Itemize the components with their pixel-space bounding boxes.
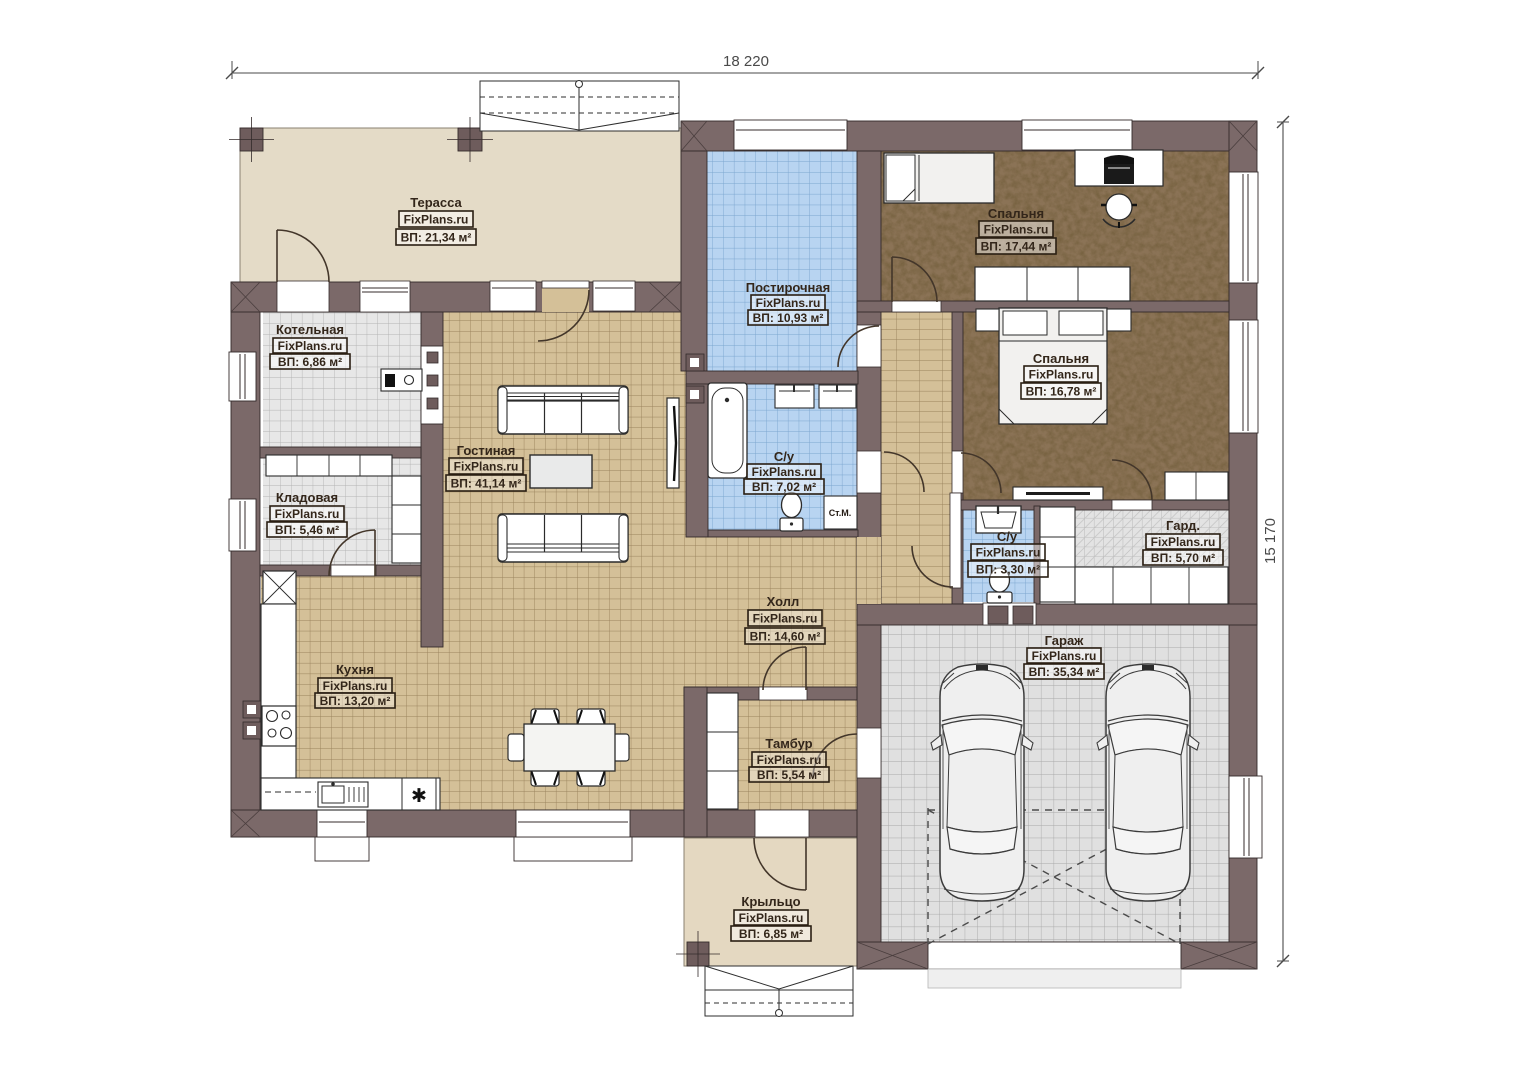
svg-text:Гард.: Гард.: [1166, 518, 1200, 533]
svg-text:ВП: 3,30 м²: ВП: 3,30 м²: [976, 563, 1040, 577]
svg-text:ВП: 10,93 м²: ВП: 10,93 м²: [753, 311, 824, 325]
svg-text:FixPlans.ru: FixPlans.ru: [1032, 649, 1097, 663]
svg-text:Крыльцо: Крыльцо: [741, 894, 800, 909]
svg-text:ВП: 14,60 м²: ВП: 14,60 м²: [750, 630, 821, 644]
svg-text:FixPlans.ru: FixPlans.ru: [757, 753, 822, 767]
svg-text:FixPlans.ru: FixPlans.ru: [752, 465, 817, 479]
svg-text:FixPlans.ru: FixPlans.ru: [278, 339, 343, 353]
svg-text:ВП: 5,70 м²: ВП: 5,70 м²: [1151, 551, 1215, 565]
svg-text:ВП: 6,85 м²: ВП: 6,85 м²: [739, 927, 803, 941]
svg-text:ВП: 5,54 м²: ВП: 5,54 м²: [757, 768, 821, 782]
svg-text:FixPlans.ru: FixPlans.ru: [756, 296, 821, 310]
svg-text:С/у: С/у: [774, 449, 795, 464]
svg-text:FixPlans.ru: FixPlans.ru: [976, 546, 1041, 560]
svg-text:ВП: 35,34 м²: ВП: 35,34 м²: [1029, 665, 1100, 679]
svg-text:ВП: 13,20 м²: ВП: 13,20 м²: [320, 694, 391, 708]
svg-text:ВП: 16,78 м²: ВП: 16,78 м²: [1026, 385, 1097, 399]
svg-text:Гараж: Гараж: [1045, 633, 1085, 648]
svg-text:FixPlans.ru: FixPlans.ru: [1029, 368, 1094, 382]
svg-text:ВП: 21,34 м²: ВП: 21,34 м²: [401, 231, 472, 245]
svg-text:Котельная: Котельная: [276, 322, 344, 337]
svg-text:Гостиная: Гостиная: [457, 443, 516, 458]
svg-text:FixPlans.ru: FixPlans.ru: [323, 679, 388, 693]
svg-text:ВП: 7,02 м²: ВП: 7,02 м²: [752, 480, 816, 494]
svg-text:FixPlans.ru: FixPlans.ru: [454, 460, 519, 474]
svg-text:Тамбур: Тамбур: [765, 736, 812, 751]
svg-text:Кухня: Кухня: [336, 662, 374, 677]
svg-text:ВП: 17,44 м²: ВП: 17,44 м²: [981, 240, 1052, 254]
svg-text:FixPlans.ru: FixPlans.ru: [984, 223, 1049, 237]
svg-text:Постирочная: Постирочная: [746, 280, 830, 295]
svg-text:ВП: 41,14 м²: ВП: 41,14 м²: [451, 477, 522, 491]
svg-text:FixPlans.ru: FixPlans.ru: [1151, 535, 1216, 549]
svg-text:С/у: С/у: [997, 529, 1018, 544]
svg-text:Холл: Холл: [767, 594, 800, 609]
svg-text:FixPlans.ru: FixPlans.ru: [275, 507, 340, 521]
svg-text:Кладовая: Кладовая: [276, 490, 338, 505]
svg-text:ВП: 6,86 м²: ВП: 6,86 м²: [278, 355, 342, 369]
svg-text:15 170: 15 170: [1262, 518, 1279, 564]
svg-text:FixPlans.ru: FixPlans.ru: [404, 213, 469, 227]
svg-text:ВП: 5,46 м²: ВП: 5,46 м²: [275, 523, 339, 537]
svg-text:FixPlans.ru: FixPlans.ru: [753, 612, 818, 626]
svg-text:Спальня: Спальня: [988, 206, 1044, 221]
svg-text:Терасса: Терасса: [410, 195, 462, 210]
svg-text:✱: ✱: [411, 786, 427, 807]
svg-text:18 220: 18 220: [723, 53, 769, 70]
svg-text:Спальня: Спальня: [1033, 351, 1089, 366]
svg-text:Ст.М.: Ст.М.: [829, 508, 852, 518]
svg-text:FixPlans.ru: FixPlans.ru: [739, 911, 804, 925]
